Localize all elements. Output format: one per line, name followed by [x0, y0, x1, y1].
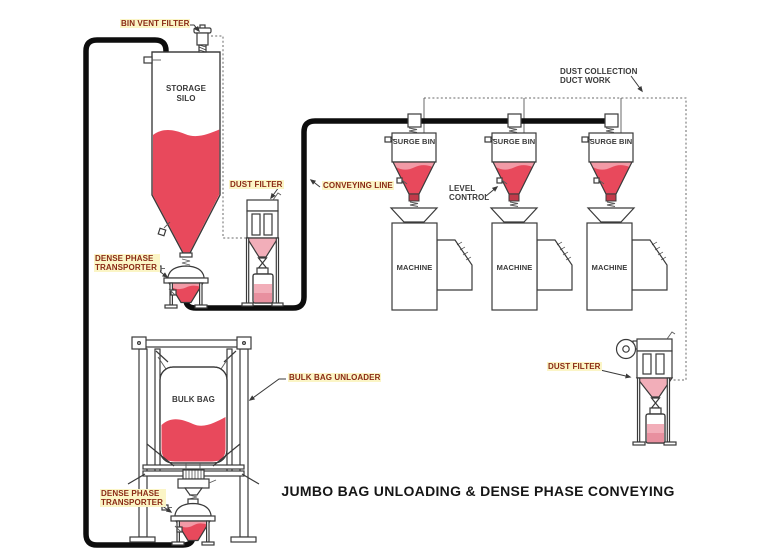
dust-filter-top-unit	[242, 193, 283, 306]
diagram-canvas	[0, 0, 768, 553]
surge-bin-2	[485, 114, 537, 222]
label-machine-1: MACHINE	[392, 263, 437, 272]
label-machine-3: MACHINE	[587, 263, 632, 272]
label-surge-bin-1: SURGE BIN	[392, 137, 436, 146]
silo-cone-valve	[158, 222, 170, 236]
diagram-title: JUMBO BAG UNLOADING & DENSE PHASE CONVEY…	[268, 483, 688, 499]
label-surge-bin-2: SURGE BIN	[492, 137, 536, 146]
label-level-control: LEVEL CONTROL	[449, 184, 495, 203]
bin-vent-filter-unit	[194, 25, 211, 52]
surge-bin-3	[582, 114, 634, 222]
label-storage-silo: STORAGE SILO	[163, 84, 209, 103]
storage-silo	[144, 25, 220, 253]
label-bin-vent-filter: BIN VENT FILTER	[120, 19, 190, 28]
transporter-valve	[177, 527, 182, 532]
surge-bin-1	[385, 114, 437, 222]
silo-side-nozzle	[144, 57, 152, 63]
dense-phase-transporter-bottom	[162, 499, 215, 545]
leader-bulk-bag-unloader	[250, 379, 286, 400]
label-bulk-bag: BULK BAG	[166, 395, 221, 405]
label-surge-bin-3: SURGE BIN	[589, 137, 633, 146]
label-dense-phase-transporter-bottom: DENSE PHASE TRANSPORTER	[100, 489, 166, 507]
hanger-plates	[156, 351, 236, 362]
dust-filter-bottom-unit	[617, 332, 677, 445]
label-dust-filter-top: DUST FILTER	[229, 180, 284, 189]
label-dust-filter-bottom: DUST FILTER	[547, 362, 602, 371]
label-dust-collection-duct-work: DUST COLLECTION DUCT WORK	[560, 67, 646, 86]
transporter-valve	[171, 290, 176, 295]
label-dense-phase-transporter-top: DENSE PHASE TRANSPORTER	[94, 254, 160, 272]
label-bulk-bag-unloader: BULK BAG UNLOADER	[288, 373, 381, 382]
dense-phase-transporter-top	[155, 253, 208, 308]
label-machine-2: MACHINE	[492, 263, 537, 272]
level-sensor	[397, 178, 402, 183]
leader-conveying-line	[311, 180, 320, 187]
diagram: BIN VENT FILTER STORAGE SILO DUST FILTER…	[0, 0, 768, 553]
label-conveying-line: CONVEYING LINE	[322, 181, 394, 190]
